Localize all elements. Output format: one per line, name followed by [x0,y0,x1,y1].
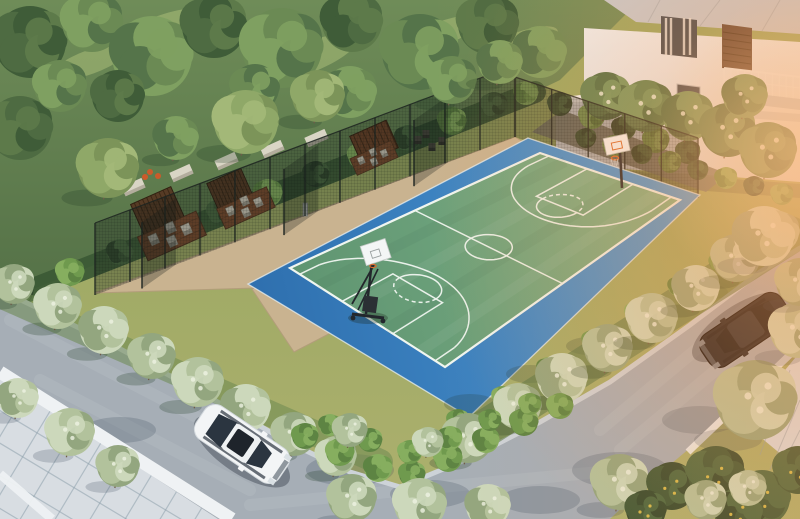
architectural-render [0,0,800,519]
sun-glow [0,0,800,519]
render-canvas [0,0,800,519]
